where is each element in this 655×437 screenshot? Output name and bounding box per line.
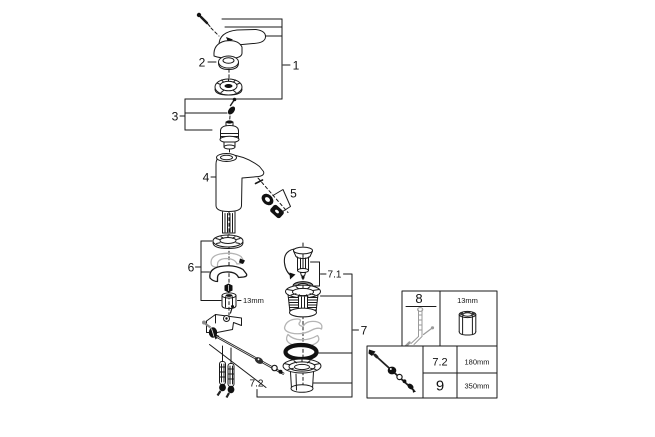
bracket-7: 7 xyxy=(314,274,368,397)
mounting-horseshoe-bracket xyxy=(210,266,247,282)
legend-row1-ref: 7.2 xyxy=(432,357,447,369)
supply-hoses xyxy=(218,346,235,398)
callout-4: 4 xyxy=(203,171,210,185)
bracket-3: 3 xyxy=(172,99,227,130)
stabilizer-plate-ghost xyxy=(211,253,245,267)
drain-o-ring xyxy=(286,345,317,359)
legend-row2-ref: 9 xyxy=(436,378,444,395)
small-nut xyxy=(225,284,233,293)
legend-parts-box: 7.2 180mm 9 350mm xyxy=(367,346,497,398)
nut-size-label: 13mm xyxy=(243,296,264,305)
bracket-7-1: 7.1 xyxy=(311,262,352,286)
drain-lower-body xyxy=(283,359,321,392)
handle-lever xyxy=(214,30,266,59)
mounting-bracket xyxy=(202,305,242,333)
handle-screw xyxy=(197,13,210,27)
callout-5: 5 xyxy=(290,187,297,201)
callout-7: 7 xyxy=(361,324,368,338)
legend-tool-ref: 8 xyxy=(415,291,422,306)
legend-tool-box: 8 13mm xyxy=(402,291,497,346)
base-washer xyxy=(213,235,243,249)
callout-7-2: 7.2 xyxy=(250,379,264,390)
callout-7-1: 7.1 xyxy=(328,270,342,281)
callout-3: 3 xyxy=(172,110,179,124)
legend-row2-length: 350mm xyxy=(464,382,489,391)
faucet-parts-drawing: 1 2 3 xyxy=(0,0,655,437)
callout-2: 2 xyxy=(199,56,206,70)
escutcheon-ring xyxy=(215,79,242,95)
mounting-nut-13mm: 13mm xyxy=(222,293,264,309)
legend-socket-size: 13mm xyxy=(457,296,478,305)
popup-plug xyxy=(284,247,312,279)
exploded-parts-diagram: 1 2 3 xyxy=(0,0,655,437)
cartridge xyxy=(220,120,239,149)
legend-row1-length: 180mm xyxy=(464,358,489,367)
drain-upper-body xyxy=(286,285,321,317)
cartridge-screw xyxy=(226,98,236,116)
callout-1: 1 xyxy=(293,59,300,73)
faucet-body: 4 xyxy=(203,154,264,212)
aerator-parts: 5 xyxy=(259,187,297,220)
callout-6: 6 xyxy=(188,261,195,275)
